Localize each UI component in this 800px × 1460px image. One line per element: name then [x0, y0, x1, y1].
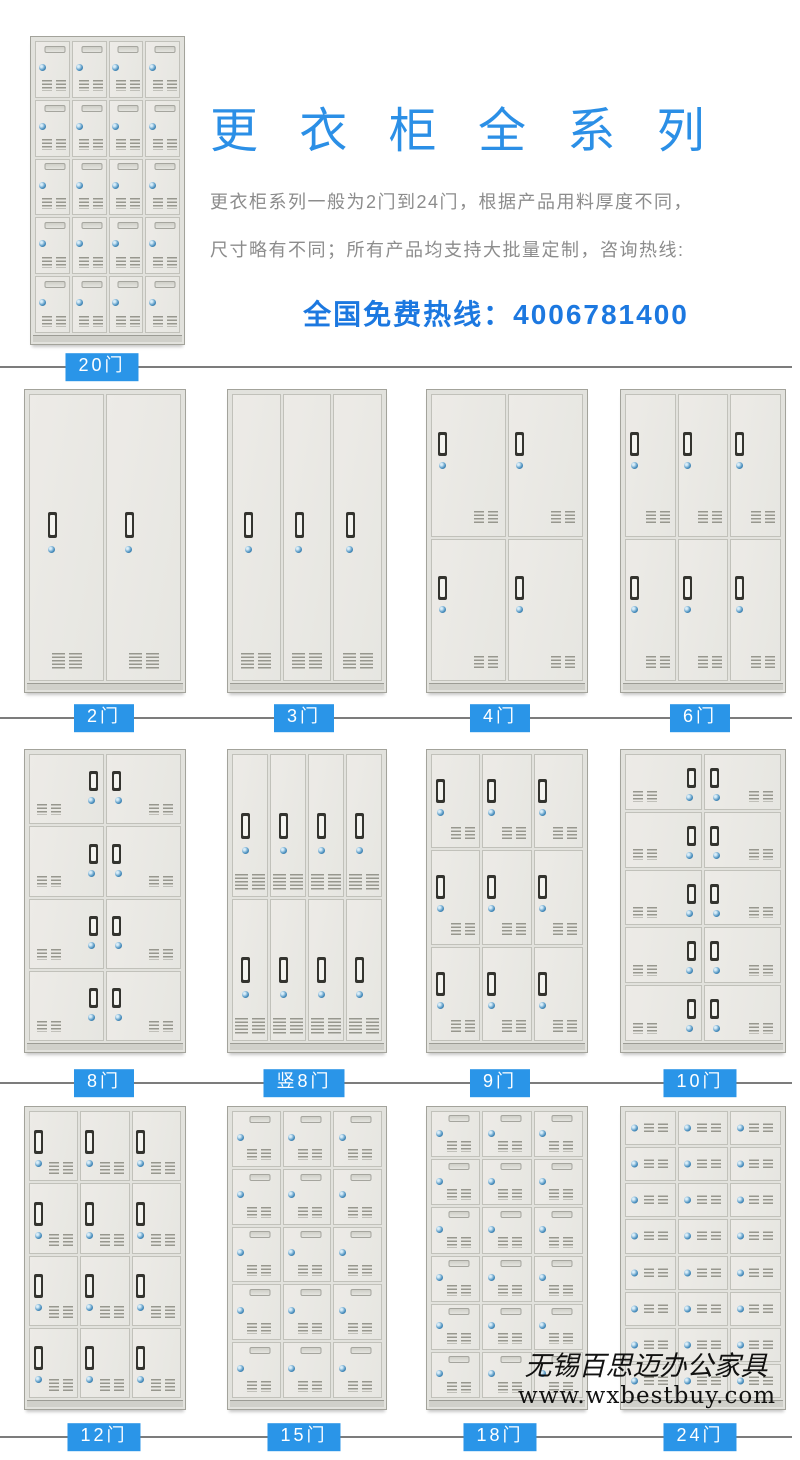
lock-icon: [149, 64, 156, 71]
locker-door: [232, 1342, 281, 1398]
lock-icon: [737, 1197, 744, 1204]
vent-grille-icon: [502, 827, 526, 840]
vent-grille-icon: [551, 656, 575, 669]
vent-grille-icon: [447, 1333, 471, 1344]
locker-door: [730, 1219, 781, 1253]
recessed-handle-icon: [155, 163, 176, 170]
vent-grille-icon: [749, 849, 773, 860]
locker-door: [270, 899, 306, 1042]
vent-grille-icon: [42, 139, 66, 150]
vent-grille-icon: [49, 1162, 73, 1175]
vent-grille-icon: [348, 1323, 372, 1334]
lock-icon: [631, 1377, 638, 1384]
lock-icon: [539, 905, 546, 912]
vent-grille-icon: [498, 1141, 522, 1152]
vent-grille-icon: [153, 139, 177, 150]
lock-icon: [288, 1134, 295, 1141]
lock-icon: [88, 870, 95, 877]
lock-icon: [631, 1305, 638, 1312]
page: 更 衣 柜 全 系 列 更衣柜系列一般为2门到24门，根据产品用料厚度不同， 尺…: [0, 0, 800, 1460]
lock-icon: [76, 182, 83, 189]
locker-door: [431, 539, 506, 682]
vent-grille-icon: [549, 1285, 573, 1296]
locker-door: [431, 947, 480, 1041]
recessed-handle-icon: [449, 1163, 470, 1170]
locker-door: [132, 1111, 181, 1181]
locker-door: [72, 100, 107, 157]
door-handle-icon: [136, 1346, 145, 1370]
door-handle-icon: [538, 972, 547, 996]
vent-grille-icon: [644, 1160, 668, 1169]
vent-grille-icon: [749, 965, 773, 976]
vent-grille-icon: [37, 949, 61, 960]
description-line-2: 尺寸略有不同；所有产品均支持大批量定制，咨询热线:: [210, 229, 782, 271]
locker-door: [625, 1147, 676, 1181]
locker-door: [431, 850, 480, 944]
locker-door: [482, 1207, 531, 1253]
door-handle-icon: [85, 1346, 94, 1370]
recessed-handle-icon: [250, 1116, 271, 1123]
vent-grille-icon: [298, 1149, 322, 1160]
locker-door: [678, 1147, 729, 1181]
vent-grille-icon: [549, 1141, 573, 1152]
locker-door: [534, 1207, 583, 1253]
lock-icon: [280, 991, 287, 998]
vent-grille-icon: [151, 1162, 175, 1175]
vent-grille-icon: [697, 1160, 721, 1169]
locker-door: [109, 276, 144, 333]
vent-grille-icon: [749, 791, 773, 802]
lock-icon: [318, 847, 325, 854]
locker-door: [431, 1256, 480, 1302]
locker-door: [35, 100, 70, 157]
locker-door: [29, 754, 104, 824]
recessed-handle-icon: [552, 1211, 573, 1218]
vent-grille-icon: [292, 653, 322, 669]
locker-door: [283, 394, 332, 681]
locker-image-24门: [620, 1106, 786, 1410]
door-handle-icon: [710, 826, 719, 846]
lock-icon: [736, 606, 743, 613]
lock-icon: [437, 809, 444, 816]
recessed-handle-icon: [300, 1347, 321, 1354]
vent-grille-icon: [153, 316, 177, 327]
vent-grille-icon: [749, 1196, 773, 1205]
locker-image-18门: [426, 1106, 588, 1410]
lock-icon: [288, 1307, 295, 1314]
locker-image-2门: [24, 389, 186, 693]
recessed-handle-icon: [250, 1289, 271, 1296]
recessed-handle-icon: [351, 1174, 372, 1181]
locker-door: [80, 1183, 129, 1253]
header-text: 更 衣 柜 全 系 列 更衣柜系列一般为2门到24门，根据产品用料厚度不同， 尺…: [210, 106, 782, 333]
lock-icon: [346, 546, 353, 553]
lock-icon: [356, 991, 363, 998]
recessed-handle-icon: [300, 1116, 321, 1123]
lock-icon: [439, 462, 446, 469]
lock-icon: [539, 1370, 546, 1377]
vent-grille-icon: [749, 1340, 773, 1349]
vent-grille-icon: [247, 1149, 271, 1160]
lock-icon: [737, 1269, 744, 1276]
vent-grille-icon: [49, 1234, 73, 1247]
locker-door: [333, 1169, 382, 1225]
lock-icon: [39, 64, 46, 71]
vent-grille-icon: [241, 653, 271, 669]
vent-grille-icon: [298, 1265, 322, 1276]
lock-icon: [76, 123, 83, 130]
locker-door: [35, 217, 70, 274]
lock-icon: [137, 1376, 144, 1383]
lock-icon: [115, 942, 122, 949]
lock-icon: [39, 123, 46, 130]
locker-door: [232, 899, 268, 1042]
lock-icon: [137, 1232, 144, 1239]
door-handle-icon: [630, 576, 639, 600]
lock-icon: [539, 809, 546, 816]
locker-door: [482, 947, 531, 1041]
lock-icon: [713, 794, 720, 801]
locker-door: [232, 1111, 281, 1167]
locker-door: [534, 1352, 583, 1398]
recessed-handle-icon: [500, 1211, 521, 1218]
lock-icon: [539, 1226, 546, 1233]
locker-door: [431, 1304, 480, 1350]
locker-image-10门: [620, 749, 786, 1053]
lock-icon: [737, 1125, 744, 1132]
locker-image-竖8门: [227, 749, 387, 1053]
locker-door: [346, 754, 382, 897]
vent-grille-icon: [698, 511, 722, 524]
vent-grille-icon: [697, 1196, 721, 1205]
lock-icon: [115, 797, 122, 804]
vent-grille-icon: [751, 656, 775, 669]
lock-icon: [115, 870, 122, 877]
locker-door: [80, 1256, 129, 1326]
recessed-handle-icon: [300, 1289, 321, 1296]
lock-icon: [280, 847, 287, 854]
door-handle-icon: [136, 1274, 145, 1298]
recessed-handle-icon: [155, 222, 176, 229]
lock-icon: [88, 797, 95, 804]
recessed-handle-icon: [500, 1163, 521, 1170]
locker-door: [534, 947, 583, 1041]
vent-grille-icon: [633, 849, 657, 860]
lock-icon: [112, 182, 119, 189]
recessed-handle-icon: [250, 1174, 271, 1181]
locker-door: [678, 1183, 729, 1217]
lock-icon: [488, 809, 495, 816]
door-handle-icon: [85, 1202, 94, 1226]
lock-icon: [439, 606, 446, 613]
locker-door: [29, 1111, 78, 1181]
lock-icon: [686, 1025, 693, 1032]
lock-icon: [242, 991, 249, 998]
vent-grille-icon: [498, 1189, 522, 1200]
door-handle-icon: [515, 432, 524, 456]
vent-grille-icon: [549, 1189, 573, 1200]
lock-icon: [88, 1014, 95, 1021]
locker-door: [625, 1219, 676, 1253]
lock-icon: [356, 847, 363, 854]
door-handle-icon: [112, 844, 121, 864]
locker-image-20-door: [30, 36, 185, 345]
door-handle-icon: [687, 826, 696, 846]
lock-icon: [686, 794, 693, 801]
recessed-handle-icon: [552, 1163, 573, 1170]
lock-icon: [684, 1377, 691, 1384]
vent-grille-icon: [451, 827, 475, 840]
door-handle-icon: [136, 1130, 145, 1154]
vent-grille-icon: [633, 791, 657, 802]
locker-door: [72, 276, 107, 333]
vent-grille-icon: [100, 1162, 124, 1175]
lock-icon: [339, 1134, 346, 1141]
locker-door: [678, 1219, 729, 1253]
locker-door: [730, 1147, 781, 1181]
recessed-handle-icon: [118, 46, 139, 53]
door-count-label: 15门: [267, 1423, 340, 1451]
locker-door: [283, 1284, 332, 1340]
lock-icon: [112, 64, 119, 71]
locker-door: [29, 1256, 78, 1326]
vent-grille-icon: [549, 1333, 573, 1344]
vent-grille-icon: [116, 139, 140, 150]
door-handle-icon: [538, 779, 547, 803]
locker-door: [508, 394, 583, 537]
locker-door: [625, 870, 702, 926]
locker-door: [625, 394, 676, 537]
door-handle-icon: [34, 1202, 43, 1226]
lock-icon: [149, 299, 156, 306]
door-count-label: 竖8门: [263, 1069, 344, 1097]
locker-door: [482, 850, 531, 944]
lock-icon: [631, 1197, 638, 1204]
lock-icon: [488, 1370, 495, 1377]
vent-grille-icon: [644, 1340, 668, 1349]
door-handle-icon: [48, 512, 57, 538]
lock-icon: [684, 1269, 691, 1276]
recessed-handle-icon: [44, 281, 65, 288]
locker-door: [730, 1292, 781, 1326]
vent-grille-icon: [451, 923, 475, 936]
lock-icon: [35, 1160, 42, 1167]
vent-grille-icon: [447, 1382, 471, 1393]
locker-door: [35, 276, 70, 333]
vent-grille-icon: [348, 1265, 372, 1276]
lock-icon: [539, 1130, 546, 1137]
door-handle-icon: [438, 576, 447, 600]
lock-icon: [137, 1160, 144, 1167]
lock-icon: [684, 1161, 691, 1168]
locker-door: [232, 754, 268, 897]
recessed-handle-icon: [552, 1356, 573, 1363]
lock-icon: [684, 1305, 691, 1312]
door-handle-icon: [279, 813, 288, 839]
locker-door: [534, 754, 583, 848]
lock-icon: [149, 182, 156, 189]
lock-icon: [35, 1232, 42, 1239]
vent-grille-icon: [644, 1304, 668, 1313]
vent-grille-icon: [100, 1234, 124, 1247]
lock-icon: [86, 1232, 93, 1239]
door-count-label: 4门: [470, 704, 530, 732]
vent-grille-icon: [42, 257, 66, 268]
locker-door: [678, 1256, 729, 1290]
locker-door: [106, 899, 181, 969]
lock-icon: [76, 240, 83, 247]
door-handle-icon: [34, 1130, 43, 1154]
door-handle-icon: [710, 941, 719, 961]
door-handle-icon: [687, 884, 696, 904]
locker-door: [132, 1328, 181, 1398]
vent-grille-icon: [151, 1379, 175, 1392]
vent-grille-icon: [129, 653, 159, 669]
door-handle-icon: [34, 1274, 43, 1298]
door-count-label: 20门: [65, 353, 138, 381]
vent-grille-icon: [149, 1021, 173, 1032]
lock-icon: [112, 299, 119, 306]
locker-door: [232, 1169, 281, 1225]
recessed-handle-icon: [81, 163, 102, 170]
door-handle-icon: [487, 972, 496, 996]
recessed-handle-icon: [500, 1308, 521, 1315]
lock-icon: [437, 1002, 444, 1009]
vent-grille-icon: [553, 1020, 577, 1033]
vent-grille-icon: [42, 80, 66, 91]
door-handle-icon: [125, 512, 134, 538]
vent-grille-icon: [646, 656, 670, 669]
locker-door: [625, 539, 676, 682]
lock-icon: [684, 1197, 691, 1204]
locker-door: [283, 1227, 332, 1283]
locker-door: [730, 1364, 781, 1398]
lock-icon: [488, 1274, 495, 1281]
lock-icon: [631, 1125, 638, 1132]
locker-door: [678, 1111, 729, 1145]
lock-icon: [686, 910, 693, 917]
locker-image-9门: [426, 749, 588, 1053]
locker-door: [106, 826, 181, 896]
locker-door: [106, 971, 181, 1041]
locker-door: [109, 159, 144, 216]
recessed-handle-icon: [300, 1231, 321, 1238]
door-handle-icon: [710, 999, 719, 1019]
lock-icon: [488, 1322, 495, 1329]
locker-door: [704, 985, 781, 1041]
locker-door: [704, 754, 781, 810]
locker-door: [308, 899, 344, 1042]
vent-grille-icon: [79, 316, 103, 327]
vent-grille-icon: [153, 80, 177, 91]
locker-door: [625, 1256, 676, 1290]
locker-door: [730, 1183, 781, 1217]
door-handle-icon: [683, 576, 692, 600]
door-handle-icon: [317, 957, 326, 983]
locker-door: [704, 927, 781, 983]
lock-icon: [436, 1178, 443, 1185]
door-handle-icon: [538, 875, 547, 899]
lock-icon: [684, 462, 691, 469]
vent-grille-icon: [644, 1124, 668, 1133]
vent-grille-icon: [79, 139, 103, 150]
recessed-handle-icon: [500, 1260, 521, 1267]
door-handle-icon: [735, 432, 744, 456]
recessed-handle-icon: [552, 1308, 573, 1315]
vent-grille-icon: [633, 907, 657, 918]
lock-icon: [631, 1161, 638, 1168]
vent-grille-icon: [644, 1232, 668, 1241]
vent-grille-icon: [349, 1018, 379, 1034]
locker-door: [625, 985, 702, 1041]
locker-door: [508, 539, 583, 682]
vent-grille-icon: [749, 1376, 773, 1385]
locker-door: [232, 1284, 281, 1340]
lock-icon: [76, 64, 83, 71]
vent-grille-icon: [348, 1207, 372, 1218]
vent-grille-icon: [79, 257, 103, 268]
vent-grille-icon: [447, 1285, 471, 1296]
locker-door: [132, 1183, 181, 1253]
locker-door: [730, 394, 781, 537]
lock-icon: [488, 1130, 495, 1137]
vent-grille-icon: [49, 1379, 73, 1392]
vent-grille-icon: [633, 965, 657, 976]
vent-grille-icon: [149, 949, 173, 960]
locker-door: [283, 1169, 332, 1225]
lock-icon: [713, 967, 720, 974]
locker-door: [346, 899, 382, 1042]
vent-grille-icon: [153, 257, 177, 268]
lock-icon: [242, 847, 249, 854]
recessed-handle-icon: [300, 1174, 321, 1181]
door-handle-icon: [355, 957, 364, 983]
door-handle-icon: [89, 771, 98, 791]
lock-icon: [339, 1249, 346, 1256]
vent-grille-icon: [151, 1234, 175, 1247]
vent-grille-icon: [447, 1141, 471, 1152]
door-count-label: 18门: [463, 1423, 536, 1451]
lock-icon: [288, 1365, 295, 1372]
vent-grille-icon: [633, 1023, 657, 1034]
locker-image-6门: [620, 389, 786, 693]
lock-icon: [516, 462, 523, 469]
vent-grille-icon: [348, 1381, 372, 1392]
locker-door: [283, 1111, 332, 1167]
locker-door: [625, 1183, 676, 1217]
door-count-label: 8门: [74, 1069, 134, 1097]
locker-door: [730, 1328, 781, 1362]
locker-door: [431, 754, 480, 848]
door-handle-icon: [687, 941, 696, 961]
lock-icon: [488, 1002, 495, 1009]
door-handle-icon: [89, 916, 98, 936]
locker-door: [534, 850, 583, 944]
recessed-handle-icon: [552, 1115, 573, 1122]
lock-icon: [488, 1178, 495, 1185]
locker-door: [482, 1352, 531, 1398]
lock-icon: [737, 1341, 744, 1348]
recessed-handle-icon: [118, 281, 139, 288]
locker-door: [80, 1328, 129, 1398]
vent-grille-icon: [343, 653, 373, 669]
vent-grille-icon: [149, 804, 173, 815]
lock-icon: [713, 1025, 720, 1032]
vent-grille-icon: [247, 1265, 271, 1276]
locker-image-15门: [227, 1106, 387, 1410]
locker-door: [704, 870, 781, 926]
locker-door: [232, 394, 281, 681]
